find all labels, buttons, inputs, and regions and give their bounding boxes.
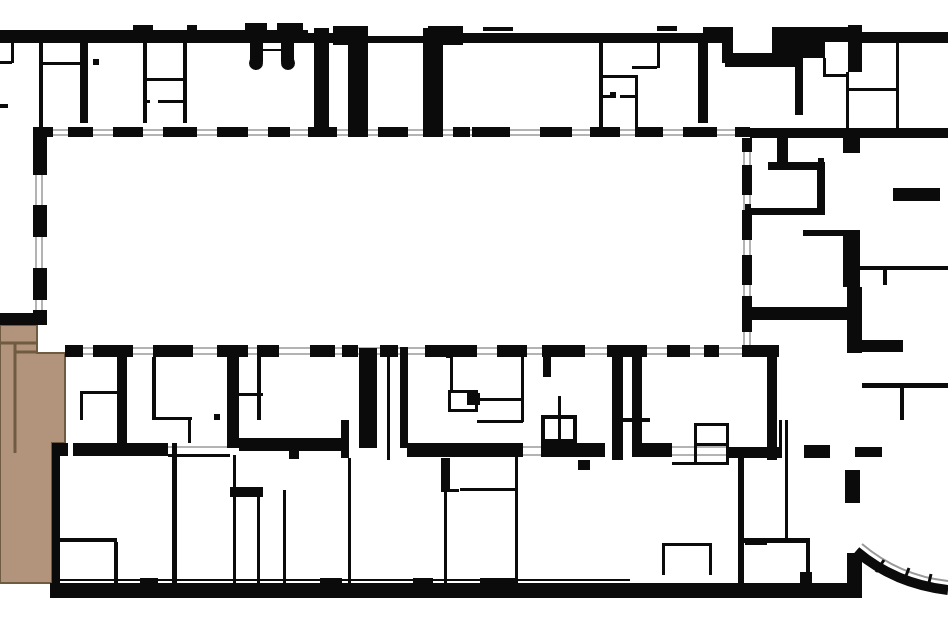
- wall-segment: [463, 33, 703, 43]
- wall-segment: [541, 415, 577, 419]
- wall-segment: [441, 489, 459, 492]
- wall-segment: [172, 443, 177, 583]
- wall-segment: [152, 357, 156, 418]
- wall-segment: [635, 75, 638, 128]
- entrance-column: [249, 56, 263, 70]
- wall-segment: [785, 420, 788, 540]
- door-jamb-tick: [745, 204, 751, 210]
- wall-segment: [230, 487, 263, 497]
- wall-segment: [900, 388, 904, 420]
- wall-segment: [709, 546, 712, 575]
- wall-segment: [745, 208, 825, 215]
- wall-segment: [341, 420, 349, 458]
- wall-segment: [803, 230, 843, 236]
- window-dash: [378, 127, 408, 137]
- window-dash: [735, 127, 750, 137]
- window-dash: [742, 165, 752, 195]
- wall-segment: [694, 462, 729, 465]
- wall-segment: [848, 25, 862, 72]
- wall-segment: [187, 25, 197, 30]
- wall-segment: [632, 443, 672, 457]
- wall-segment: [168, 454, 230, 457]
- wall-segment: [662, 546, 665, 575]
- wall-segment: [694, 443, 729, 446]
- wall-segment: [803, 42, 825, 58]
- wall-segment: [603, 95, 611, 98]
- wall-segment: [143, 41, 147, 123]
- wall-segment: [603, 75, 635, 78]
- wall-segment: [750, 128, 948, 138]
- wall-segment: [632, 66, 657, 69]
- wall-segment: [725, 53, 777, 67]
- wall-segment: [662, 543, 712, 546]
- wall-segment: [612, 347, 623, 460]
- window-dash: [342, 345, 358, 357]
- wall-segment: [58, 538, 117, 542]
- wall-segment: [768, 162, 825, 170]
- wall-segment: [620, 95, 635, 98]
- wall-segment: [117, 355, 127, 455]
- wall-segment: [257, 352, 261, 420]
- wall-segment: [623, 418, 650, 422]
- wall-segment: [860, 266, 948, 270]
- wall-segment: [39, 41, 43, 128]
- floor-plan-svg: [0, 0, 948, 632]
- window-dash: [667, 345, 690, 357]
- wall-segment: [460, 488, 515, 491]
- wall-segment: [348, 458, 351, 583]
- wall-segment: [114, 542, 118, 583]
- wall-segment: [43, 62, 80, 65]
- wall-segment: [348, 28, 368, 133]
- wall-segment: [188, 420, 191, 443]
- window-dash: [268, 127, 290, 137]
- window-dash: [742, 138, 752, 152]
- wall-segment: [277, 23, 303, 30]
- door-jamb-tick: [214, 414, 220, 420]
- window-dash: [542, 345, 585, 357]
- wall-segment: [694, 423, 729, 426]
- window-dash: [163, 127, 197, 137]
- wall-segment: [767, 345, 777, 460]
- wall-segment: [738, 458, 744, 585]
- window-dash: [742, 320, 752, 332]
- window-dash: [683, 127, 717, 137]
- wall-segment: [444, 492, 447, 583]
- wall-segment: [143, 100, 150, 103]
- wall-segment: [239, 438, 342, 451]
- wall-segment: [742, 307, 848, 320]
- door-jamb-tick: [446, 352, 452, 358]
- wall-segment: [400, 347, 408, 448]
- wall-segment: [657, 43, 660, 68]
- wall-segment: [893, 188, 940, 201]
- wall-segment: [257, 497, 260, 583]
- window-dash: [453, 127, 470, 137]
- window-dash: [590, 127, 620, 137]
- wall-segment: [599, 43, 603, 128]
- wall-segment: [772, 27, 798, 67]
- wall-segment: [477, 398, 523, 401]
- wall-segment: [480, 578, 518, 583]
- wall-segment: [0, 61, 12, 64]
- wall-segment: [632, 352, 642, 457]
- wall-segment: [423, 28, 443, 133]
- wall-segment: [672, 462, 694, 465]
- wall-segment: [843, 138, 860, 153]
- wall-segment: [657, 26, 677, 31]
- wall-segment: [407, 443, 523, 457]
- window-dash: [310, 345, 335, 357]
- window-dash: [217, 127, 248, 137]
- wall-segment: [238, 393, 263, 396]
- wall-segment: [862, 32, 948, 43]
- window-dash: [65, 345, 83, 357]
- wall-segment: [245, 23, 267, 30]
- wall-segment: [558, 396, 561, 443]
- wall-segment: [806, 541, 810, 575]
- wall-segment: [73, 443, 168, 456]
- wall-segment: [283, 490, 286, 583]
- wall-segment: [80, 394, 83, 420]
- window-dash: [472, 127, 510, 137]
- wall-segment: [80, 391, 117, 394]
- entrance-column: [281, 56, 295, 70]
- wall-segment: [0, 313, 43, 325]
- window-dash: [540, 127, 572, 137]
- wall-segment: [448, 390, 478, 393]
- door-jamb-tick: [818, 158, 824, 164]
- window-dash: [33, 128, 47, 142]
- wall-segment: [729, 447, 779, 458]
- wall-segment: [359, 348, 377, 448]
- wall-segment: [183, 41, 187, 123]
- window-dash: [497, 345, 527, 357]
- wall-segment: [578, 460, 590, 470]
- wall-segment: [843, 230, 860, 287]
- wall-segment: [477, 420, 523, 423]
- wall-segment: [314, 28, 329, 133]
- window-dash: [113, 127, 143, 137]
- wall-segment: [158, 100, 187, 103]
- wall-segment: [698, 40, 708, 123]
- wall-segment: [233, 455, 236, 583]
- wall-segment: [800, 572, 812, 583]
- wall-segment: [823, 74, 848, 77]
- wall-segment: [850, 340, 903, 352]
- wall-segment: [413, 578, 433, 583]
- wall-segment: [779, 420, 782, 458]
- door-jamb-tick: [93, 59, 99, 65]
- wall-segment: [133, 25, 153, 30]
- wall-segment: [11, 41, 14, 63]
- wall-segment: [541, 439, 577, 443]
- wall-segment: [521, 357, 524, 422]
- wall-segment: [795, 42, 803, 115]
- wall-segment: [0, 104, 8, 108]
- wall-segment: [387, 355, 390, 460]
- wall-segment: [448, 409, 478, 412]
- wall-segment: [846, 72, 849, 128]
- wall-segment: [845, 470, 860, 503]
- wall-segment: [140, 578, 158, 583]
- wall-segment: [52, 455, 60, 583]
- wall-segment: [541, 443, 605, 457]
- wall-segment: [450, 357, 453, 390]
- wall-segment: [804, 445, 830, 458]
- window-dash: [742, 255, 752, 285]
- window-dash: [153, 345, 193, 357]
- floor-plan-page: [0, 0, 948, 632]
- window-dash: [635, 127, 663, 137]
- window-dash: [33, 268, 47, 300]
- wall-segment: [883, 270, 887, 285]
- wall-segment: [862, 383, 948, 388]
- wall-segment: [50, 583, 862, 598]
- wall-segment: [846, 88, 897, 91]
- wall-segment: [777, 138, 788, 163]
- window-dash: [704, 345, 719, 357]
- wall-segment: [896, 43, 899, 128]
- window-dash: [33, 205, 47, 237]
- window-dash: [33, 140, 47, 175]
- wall-segment: [441, 458, 450, 492]
- door-jamb-tick: [610, 92, 616, 98]
- wall-segment: [795, 27, 848, 42]
- wall-segment: [368, 36, 428, 43]
- wall-segment: [320, 578, 342, 583]
- wall-segment: [543, 357, 551, 377]
- wall-segment: [483, 27, 513, 31]
- wall-segment: [855, 447, 882, 457]
- wall-segment: [515, 457, 518, 580]
- wall-segment: [227, 352, 239, 448]
- wall-segment: [80, 41, 88, 123]
- wall-segment: [143, 78, 187, 81]
- wall-segment: [289, 451, 299, 459]
- window-dash: [68, 127, 93, 137]
- wall-segment: [52, 443, 68, 456]
- wall-segment: [745, 538, 767, 545]
- wall-segment: [152, 417, 192, 420]
